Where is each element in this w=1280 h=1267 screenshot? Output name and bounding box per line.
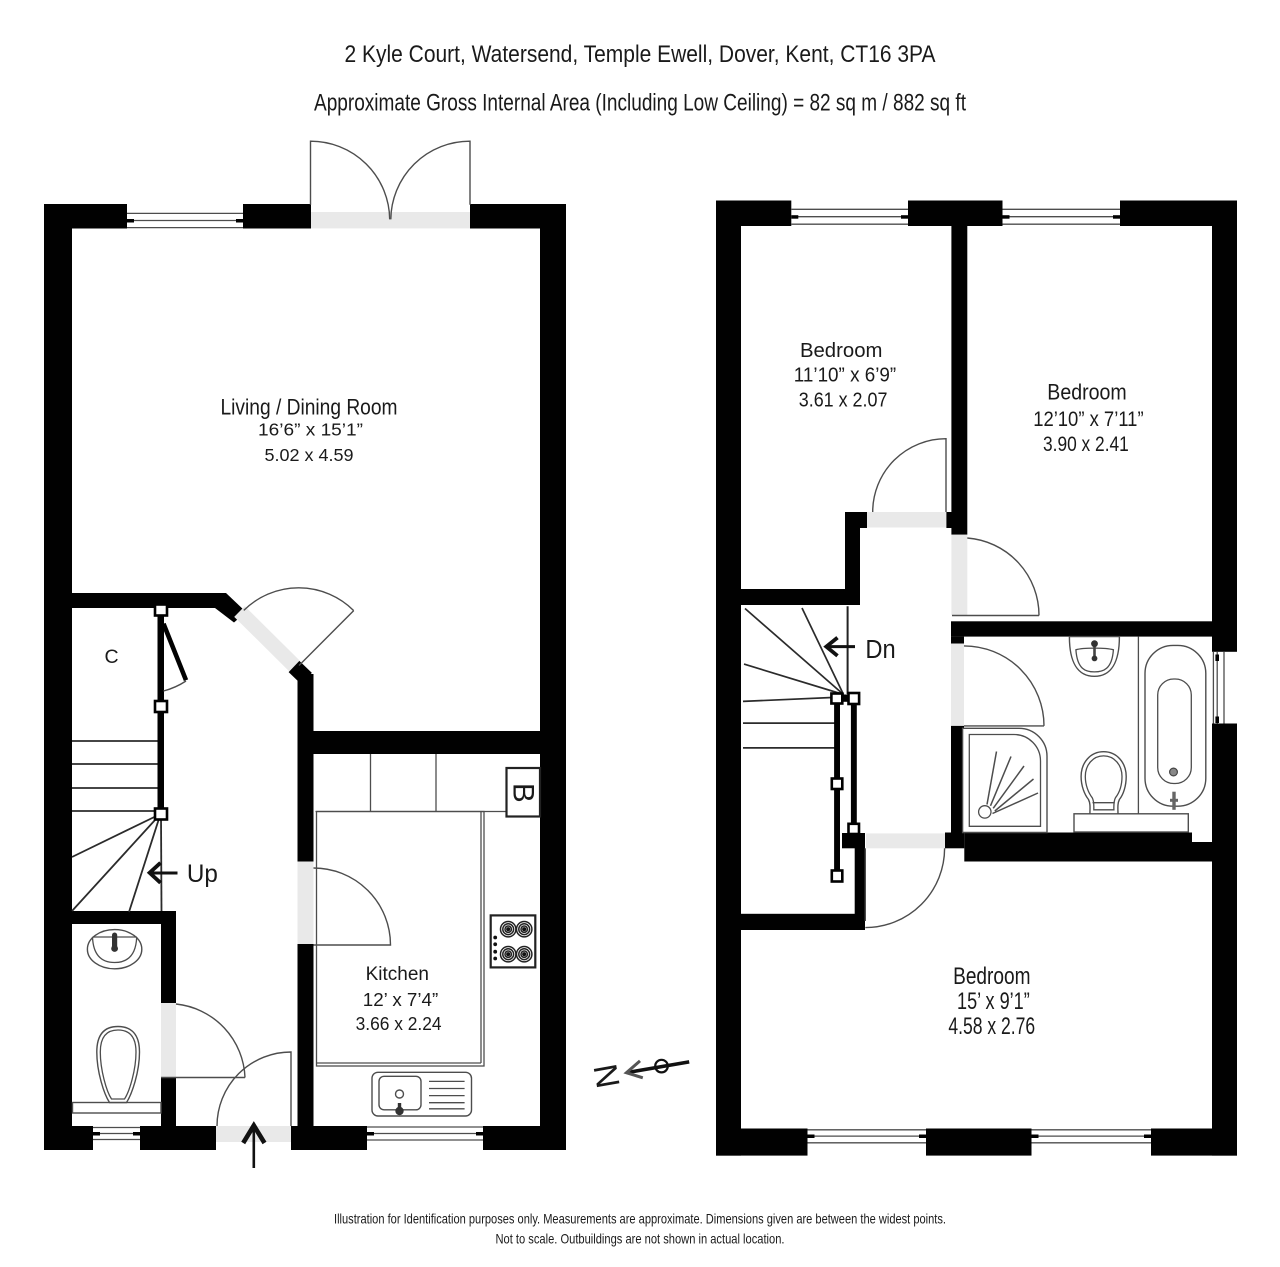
svg-text:Bedroom: Bedroom xyxy=(800,339,883,362)
svg-text:3.61 x 2.07: 3.61 x 2.07 xyxy=(799,388,888,411)
svg-text:C: C xyxy=(104,646,118,668)
svg-text:2 Kyle Court, Watersend, Templ: 2 Kyle Court, Watersend, Temple Ewell, D… xyxy=(345,41,937,68)
svg-text:Illustration for Identificatio: Illustration for Identification purposes… xyxy=(334,1212,946,1227)
svg-text:5.02 x 4.59: 5.02 x 4.59 xyxy=(265,445,354,465)
svg-text:B: B xyxy=(507,783,540,803)
svg-text:12’ x 7’4”: 12’ x 7’4” xyxy=(363,990,439,1010)
svg-text:Not to scale. Outbuildings ar: Not to scale. Outbuildings are not shown… xyxy=(496,1232,785,1247)
svg-text:Bedroom: Bedroom xyxy=(953,964,1030,990)
svg-text:Bedroom: Bedroom xyxy=(1047,380,1126,405)
svg-text:16’6” x 15’1”: 16’6” x 15’1” xyxy=(258,420,363,440)
svg-text:12’10” x 7’11”: 12’10” x 7’11” xyxy=(1033,407,1143,431)
svg-text:11’10” x 6’9”: 11’10” x 6’9” xyxy=(794,363,897,386)
svg-text:3.90 x 2.41: 3.90 x 2.41 xyxy=(1043,432,1129,456)
svg-text:15’ x 9’1”: 15’ x 9’1” xyxy=(957,989,1030,1015)
svg-text:Dn: Dn xyxy=(865,636,895,664)
svg-text:Up: Up xyxy=(187,860,218,888)
svg-text:Approximate Gross Internal Are: Approximate Gross Internal Area (Includi… xyxy=(314,90,966,117)
svg-text:3.66 x 2.24: 3.66 x 2.24 xyxy=(356,1014,442,1034)
svg-text:4.58 x 2.76: 4.58 x 2.76 xyxy=(948,1014,1035,1040)
svg-text:Kitchen: Kitchen xyxy=(366,963,429,985)
svg-text:Living / Dining Room: Living / Dining Room xyxy=(221,394,398,419)
